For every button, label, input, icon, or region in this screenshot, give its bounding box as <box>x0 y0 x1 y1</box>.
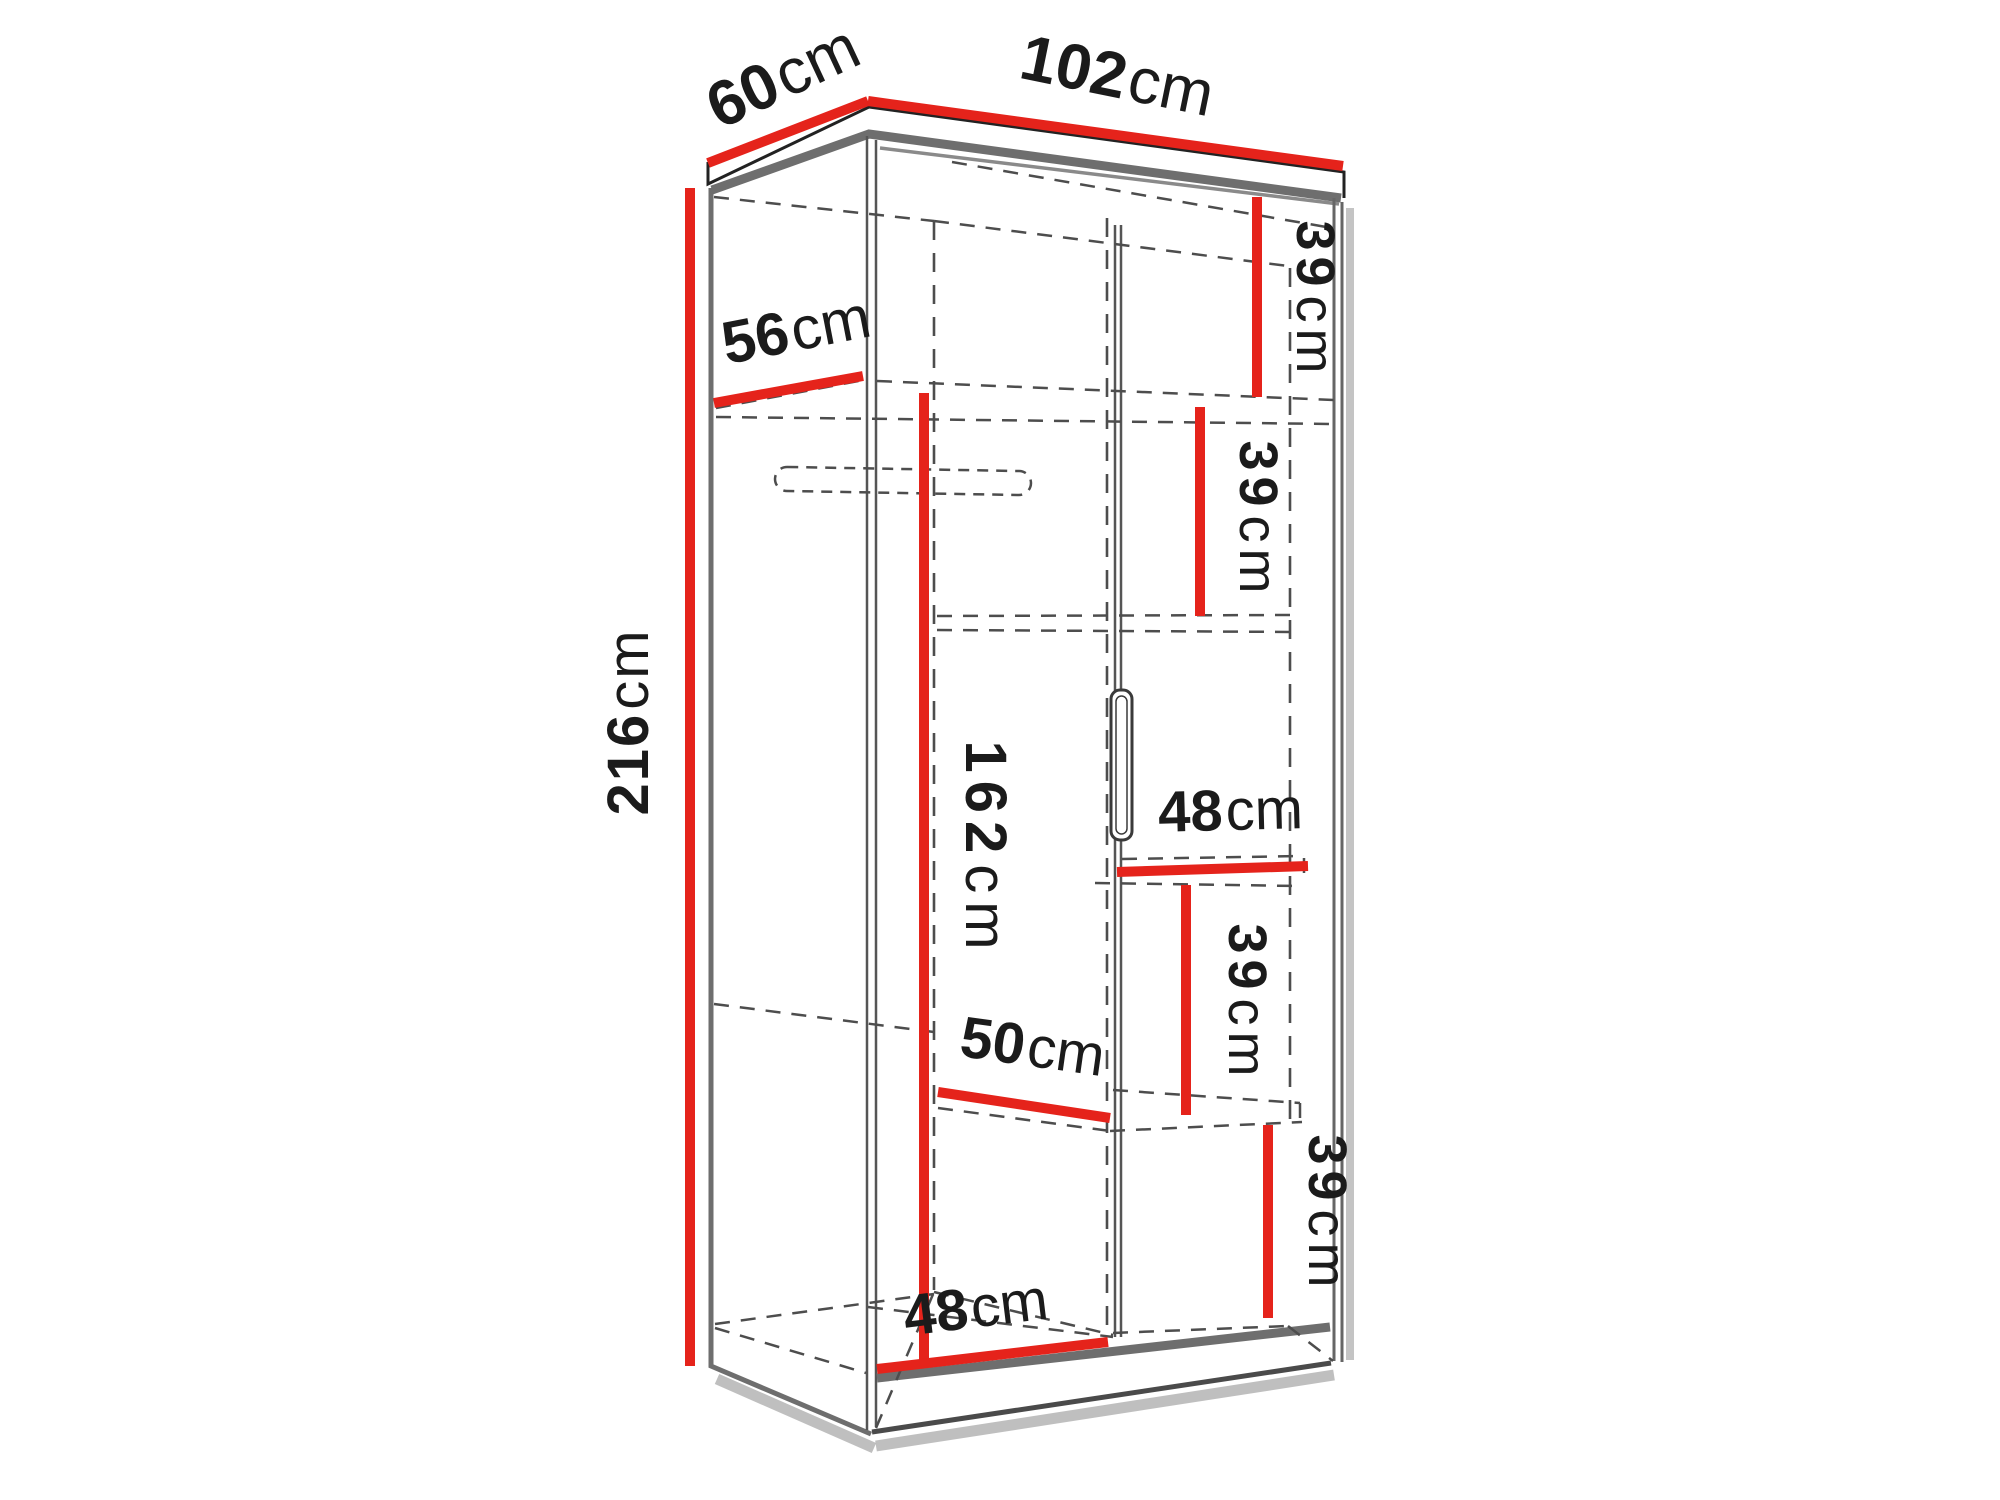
bottom-left-shadow <box>717 1379 874 1448</box>
label-interior-depth: 56cm <box>716 283 876 377</box>
label-39-bottom: 39cm <box>1297 1134 1357 1293</box>
diagram-canvas: 60cm 102cm 216cm 56cm 39cm 39cm 162cm 48… <box>0 0 2000 1500</box>
label-48-right: 48cm <box>1157 776 1303 845</box>
label-39-third: 39cm <box>1217 923 1277 1082</box>
shelf3-top-edge <box>1122 856 1304 859</box>
wardrobe-diagram: 60cm 102cm 216cm 56cm 39cm 39cm 162cm 48… <box>0 0 2000 1500</box>
shelf4-bottom-edge-right <box>1110 1122 1302 1131</box>
shelf4-side-line <box>714 1004 934 1032</box>
dim-line-interior-depth <box>714 376 863 403</box>
dim-line-50-left <box>938 1092 1110 1118</box>
bottom-shadow <box>876 1375 1334 1446</box>
shelf2-bottom-edge <box>937 630 1301 632</box>
label-height-left: 216cm <box>596 628 661 815</box>
shelf2-top-edge <box>937 615 1296 616</box>
label-hanging-height: 162cm <box>953 740 1018 957</box>
label-width-top: 102cm <box>1015 21 1221 130</box>
top-shelf-bottom-edge <box>716 417 1334 424</box>
label-39-top: 39cm <box>1285 220 1345 379</box>
dimension-lines <box>690 101 1343 1369</box>
interior-top-left-edge <box>714 197 934 221</box>
dim-line-48-right <box>1117 866 1308 872</box>
shelf3-bottom-edge <box>1095 883 1298 886</box>
door-handle <box>1111 690 1132 840</box>
interior-back-top-edge <box>934 221 1288 266</box>
shelf4-top-edge-right <box>1113 1090 1300 1103</box>
label-39-second: 39cm <box>1228 440 1288 599</box>
label-50-left: 50cm <box>956 1004 1108 1089</box>
side-floor-front-line <box>715 1328 866 1373</box>
top-shelf-front-edge <box>877 381 1334 400</box>
hanging-rail <box>775 467 1031 495</box>
label-depth-top: 60cm <box>695 10 870 143</box>
